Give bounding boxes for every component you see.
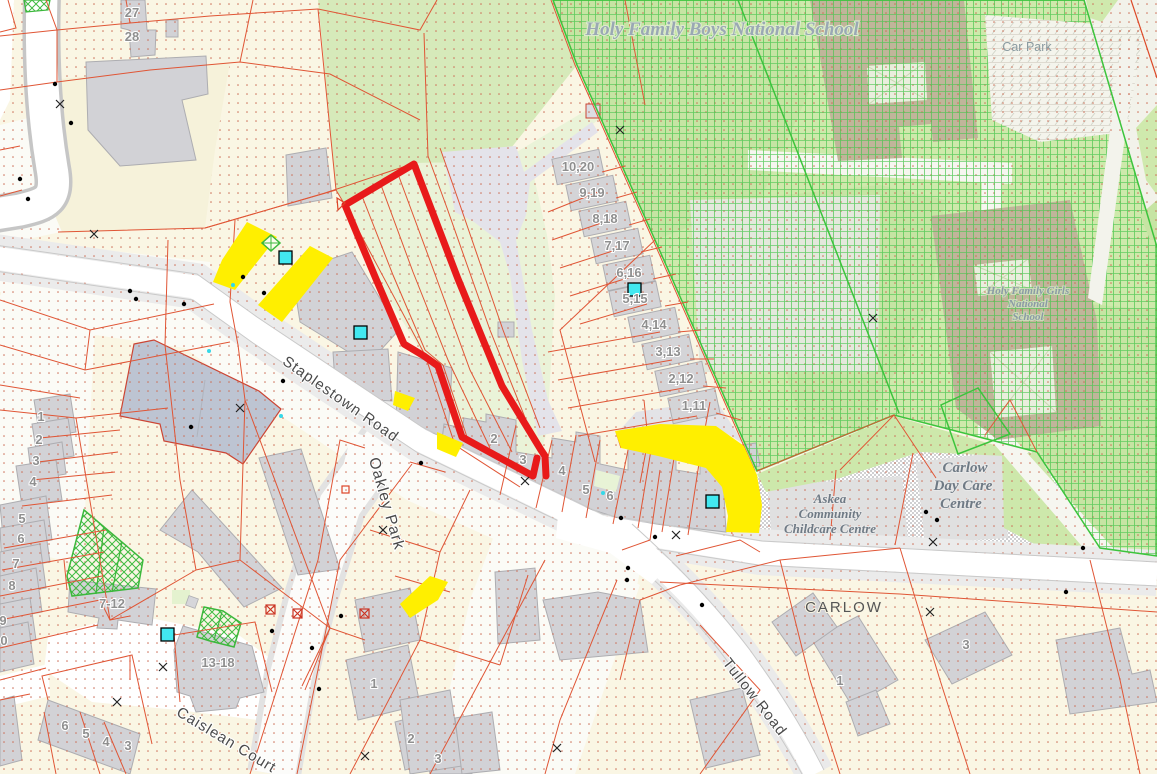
svg-text:Community: Community <box>799 506 862 521</box>
svg-text:3,13: 3,13 <box>655 344 680 359</box>
svg-text:1,11: 1,11 <box>682 398 707 413</box>
svg-text:2: 2 <box>35 432 42 447</box>
svg-text:Askea: Askea <box>813 491 847 506</box>
svg-text:8,18: 8,18 <box>592 211 617 226</box>
svg-text:28: 28 <box>125 29 139 44</box>
svg-text:6,16: 6,16 <box>616 265 641 280</box>
svg-text:Childcare Centre: Childcare Centre <box>784 521 876 536</box>
svg-text:5: 5 <box>18 511 25 526</box>
svg-text:3: 3 <box>519 452 526 467</box>
svg-text:5: 5 <box>82 726 89 741</box>
svg-text:6: 6 <box>606 488 613 503</box>
svg-text:School: School <box>1012 311 1044 323</box>
svg-text:4,14: 4,14 <box>641 317 667 332</box>
svg-text:3: 3 <box>124 738 131 753</box>
svg-text:3: 3 <box>32 453 39 468</box>
svg-text:Centre: Centre <box>940 496 982 512</box>
svg-text:27: 27 <box>125 5 139 20</box>
svg-text:CARLOW: CARLOW <box>805 599 883 616</box>
svg-text:6: 6 <box>61 718 68 733</box>
svg-text:10,20: 10,20 <box>562 159 595 174</box>
svg-text:Car Park: Car Park <box>1002 40 1052 54</box>
svg-text:9,19: 9,19 <box>579 185 604 200</box>
svg-text:6: 6 <box>17 531 24 546</box>
svg-text:4: 4 <box>102 734 110 749</box>
svg-text:7-12: 7-12 <box>99 596 125 611</box>
svg-text:1: 1 <box>370 676 377 691</box>
svg-text:2: 2 <box>490 431 497 446</box>
svg-text:1: 1 <box>37 409 44 424</box>
svg-text:0: 0 <box>0 633 7 648</box>
svg-text:3: 3 <box>962 637 969 652</box>
svg-text:Carlow: Carlow <box>942 460 988 476</box>
svg-text:9: 9 <box>0 613 7 628</box>
svg-text:13-18: 13-18 <box>201 655 234 670</box>
svg-text:National: National <box>1007 298 1049 310</box>
svg-text:5,15: 5,15 <box>622 291 647 306</box>
svg-text:2: 2 <box>407 731 414 746</box>
svg-text:2,12: 2,12 <box>668 371 693 386</box>
svg-text:7: 7 <box>12 556 19 571</box>
svg-text:1: 1 <box>836 673 843 688</box>
svg-text:Holy Family Girls: Holy Family Girls <box>986 285 1070 297</box>
svg-text:Holy Family Boys National Scho: Holy Family Boys National School <box>584 19 859 40</box>
svg-text:8: 8 <box>8 578 15 593</box>
svg-text:7,17: 7,17 <box>604 238 629 253</box>
svg-text:4: 4 <box>29 474 37 489</box>
svg-text:4: 4 <box>558 463 566 478</box>
svg-text:Day Care: Day Care <box>933 478 993 494</box>
svg-text:5: 5 <box>582 482 589 497</box>
svg-text:3: 3 <box>434 751 441 766</box>
